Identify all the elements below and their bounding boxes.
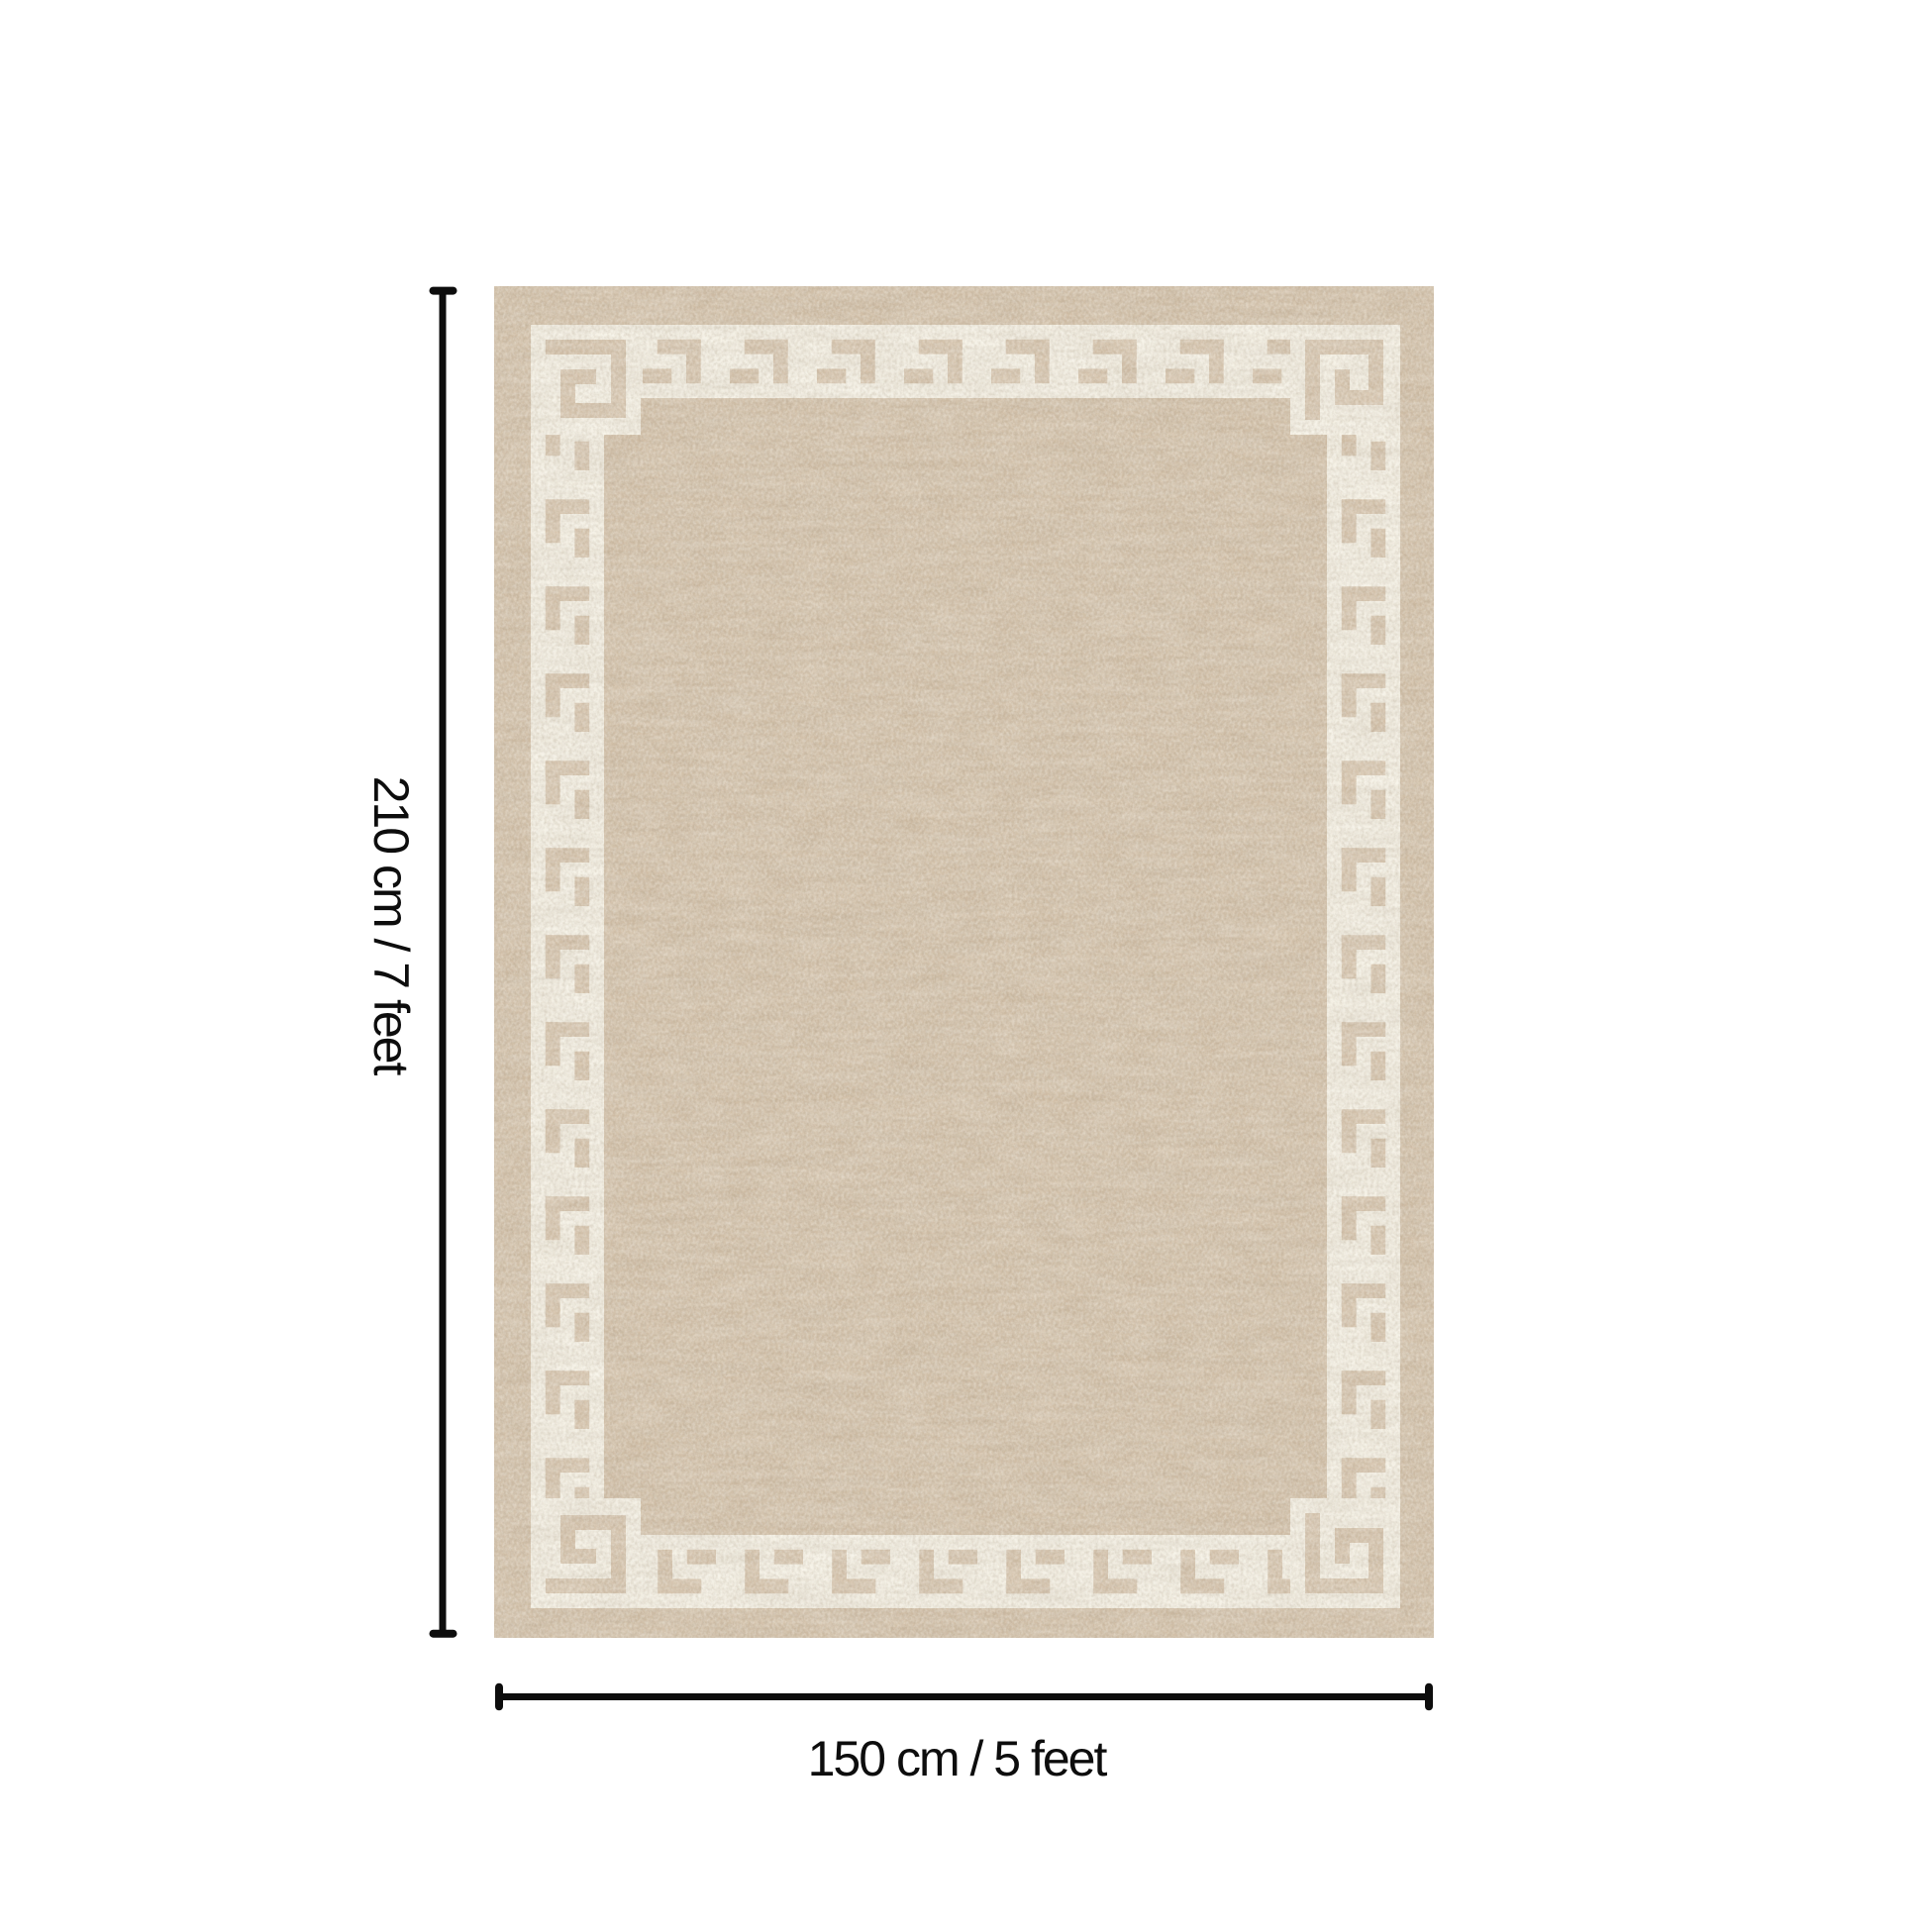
svg-text:150 cm / 5 feet: 150 cm / 5 feet (808, 1731, 1108, 1786)
svg-text:210 cm / 7 feet: 210 cm / 7 feet (363, 776, 419, 1076)
